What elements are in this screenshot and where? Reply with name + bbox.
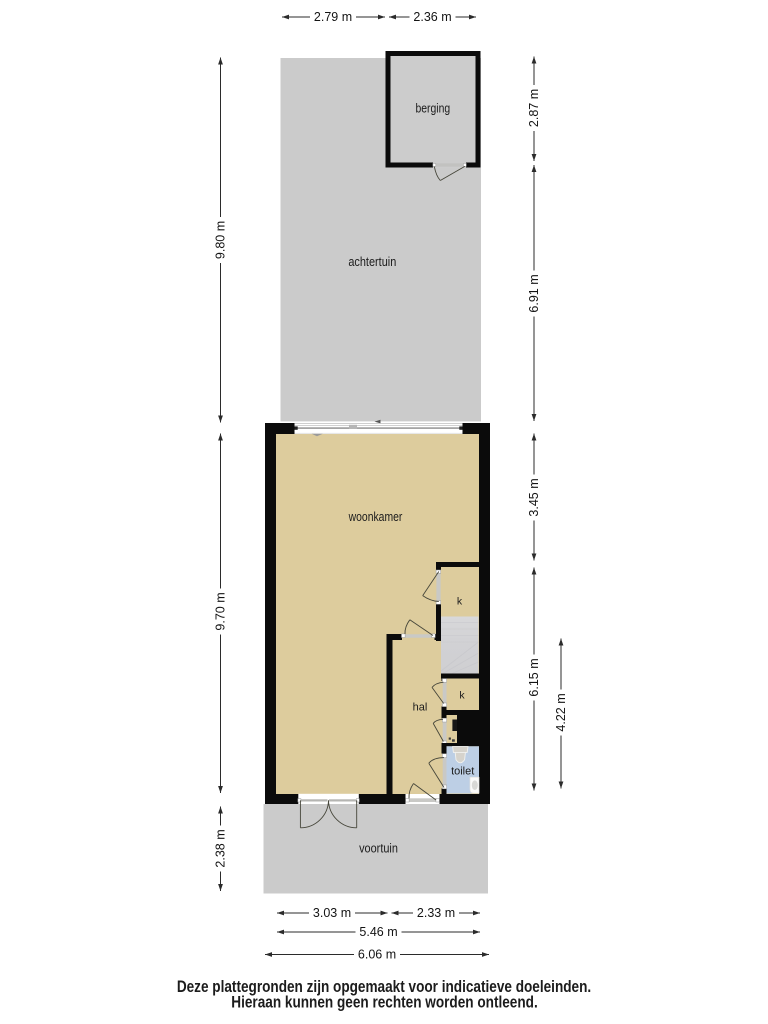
svg-text:2.33 m: 2.33 m <box>417 906 455 920</box>
svg-text:9.80 m: 9.80 m <box>214 221 228 259</box>
svg-text:Hieraan kunnen geen rechten wo: Hieraan kunnen geen rechten worden ontle… <box>231 993 537 1012</box>
svg-text:2.87 m: 2.87 m <box>527 89 541 127</box>
svg-text:hal: hal <box>413 702 428 714</box>
svg-text:achtertuin: achtertuin <box>348 254 396 269</box>
svg-text:5.46 m: 5.46 m <box>359 925 397 939</box>
svg-text:3.03 m: 3.03 m <box>313 906 351 920</box>
svg-text:k: k <box>457 596 463 608</box>
svg-text:6.91 m: 6.91 m <box>527 274 541 312</box>
svg-text:toilet: toilet <box>451 766 474 778</box>
svg-text:2.79 m: 2.79 m <box>314 10 352 24</box>
svg-text:2.36 m: 2.36 m <box>413 10 451 24</box>
svg-text:2.38 m: 2.38 m <box>214 829 228 867</box>
svg-text:6.15 m: 6.15 m <box>527 658 541 696</box>
svg-text:4.22 m: 4.22 m <box>554 693 568 731</box>
svg-text:3.45 m: 3.45 m <box>527 478 541 516</box>
svg-text:6.06 m: 6.06 m <box>358 948 396 962</box>
svg-text:voortuin: voortuin <box>359 841 398 856</box>
svg-text:berging: berging <box>415 101 450 115</box>
svg-text:k: k <box>459 690 465 702</box>
svg-text:woonkamer: woonkamer <box>348 510 403 524</box>
svg-text:9.70 m: 9.70 m <box>214 592 228 630</box>
